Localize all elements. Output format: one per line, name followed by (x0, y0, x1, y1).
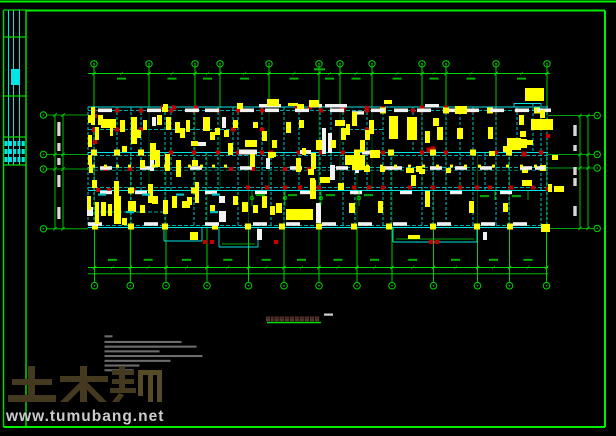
svg-text:www.tumubang.net: www.tumubang.net (5, 408, 164, 425)
